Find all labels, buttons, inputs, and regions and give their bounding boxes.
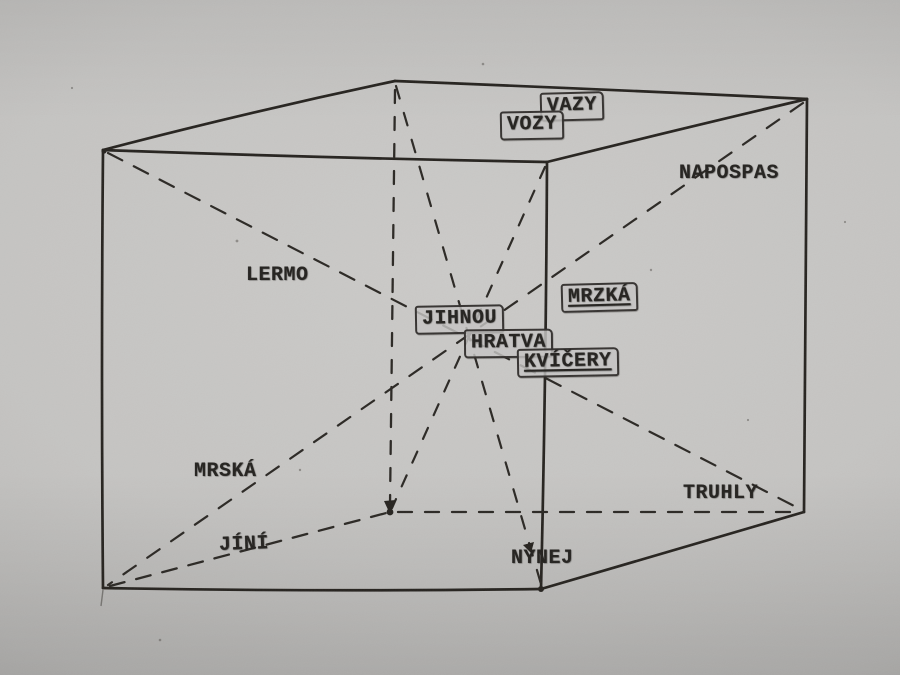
edge-left-vertical xyxy=(102,150,103,588)
paper-speck xyxy=(159,639,162,642)
label-vozy: VOZY xyxy=(500,110,565,140)
ink-run-bottom-left xyxy=(101,590,103,606)
label-truhly: TRUHLY xyxy=(683,483,758,505)
label-nynej: NYNEJ xyxy=(511,548,574,570)
hidden-edge-back-vertical xyxy=(390,90,395,505)
label-kvicery: KVÍČERY xyxy=(517,347,619,378)
ink-blob-front-bottom-corner xyxy=(538,586,544,592)
paper-background: VAZY VOZY NAPOSPAS LERMO MRZKÁ JIHNOU HR… xyxy=(0,0,900,675)
edge-top-back-left xyxy=(103,81,395,150)
edge-top-front-left xyxy=(103,150,547,162)
label-mrzka: MRZKÁ xyxy=(561,282,638,313)
label-mrska: MRSKÁ xyxy=(194,461,257,483)
paper-speck xyxy=(747,419,749,421)
edge-bottom-right xyxy=(541,512,804,589)
edge-bottom-front xyxy=(103,588,541,590)
label-jini: JÍNÍ xyxy=(219,533,270,557)
paper-speck xyxy=(236,240,239,243)
edge-right-vertical xyxy=(804,99,807,512)
paper-speck xyxy=(650,269,652,271)
ink-blob-top-left-corner xyxy=(101,148,106,153)
label-napospas: NAPOSPAS xyxy=(679,163,779,185)
paper-speck xyxy=(299,469,301,471)
paper-speck xyxy=(482,63,485,66)
paper-speck xyxy=(71,87,73,89)
label-lermo: LERMO xyxy=(246,265,309,287)
ink-blob-back-bottom-corner xyxy=(387,509,394,516)
cube-wireframe xyxy=(0,0,900,675)
paper-speck xyxy=(844,221,846,223)
